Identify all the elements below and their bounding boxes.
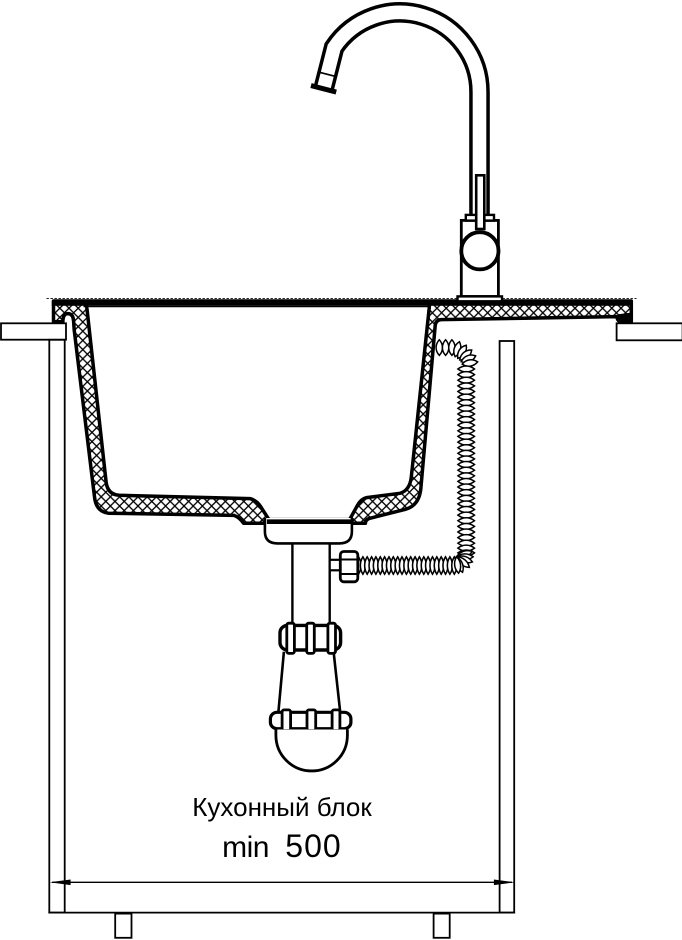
svg-text:min: min <box>222 831 269 864</box>
svg-text:Кухонный блок: Кухонный блок <box>192 792 372 822</box>
svg-text:500: 500 <box>285 828 341 864</box>
